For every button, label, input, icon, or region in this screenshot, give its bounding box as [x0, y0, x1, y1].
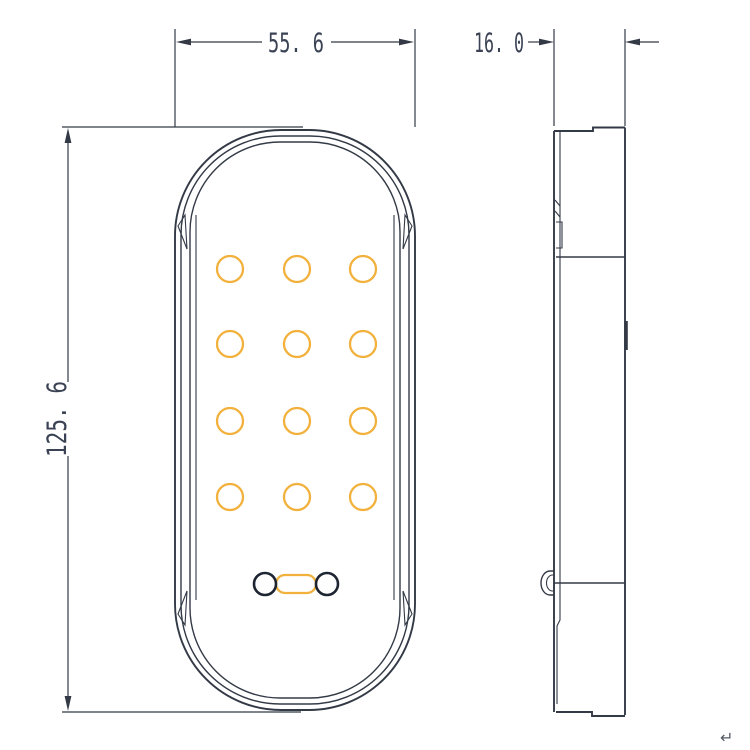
- led-circle: [217, 331, 243, 357]
- depth-dimension-text: 16. 0: [474, 28, 524, 59]
- front-bezel-outline: [181, 136, 409, 704]
- connector-hole-right: [316, 573, 338, 595]
- side-clip-latch: [556, 222, 562, 248]
- led-circle: [217, 256, 243, 282]
- side-top-edge: [554, 128, 625, 132]
- width-dimension-text: 55. 6: [268, 28, 324, 59]
- height-dimension-text: 125. 6: [42, 381, 73, 457]
- dimension-depth: 16. 0: [474, 28, 659, 126]
- width-arrow-right: [399, 39, 414, 46]
- led-circle: [350, 256, 376, 282]
- height-arrow-bottom: [65, 696, 72, 711]
- led-circle: [217, 408, 243, 434]
- return-glyph: ↵: [720, 728, 733, 747]
- connector-pad: [276, 575, 316, 593]
- front-lens-outline: [190, 142, 400, 698]
- led-circle: [284, 408, 310, 434]
- drawing-canvas: 55. 6 16. 0 125. 6 ↵: [0, 0, 750, 750]
- depth-extension-lines: [554, 29, 625, 126]
- front-view: [175, 130, 415, 710]
- dimension-width: 55. 6: [175, 28, 415, 127]
- led-circle: [350, 408, 376, 434]
- led-circle: [284, 484, 310, 510]
- technical-drawing-svg: 55. 6 16. 0 125. 6 ↵: [0, 0, 750, 750]
- led-circle: [350, 484, 376, 510]
- side-clip-ticks: [555, 200, 560, 217]
- led-circle: [284, 331, 310, 357]
- width-arrow-left: [176, 39, 191, 46]
- led-grid: [217, 256, 376, 510]
- dimension-height: 125. 6: [42, 127, 303, 712]
- connector-hole-left: [254, 573, 276, 595]
- side-connector-bump-inner: [547, 575, 555, 591]
- side-bottom-edge: [556, 712, 625, 716]
- connector: [254, 573, 338, 595]
- led-circle: [284, 256, 310, 282]
- depth-arrow-right: [625, 39, 640, 46]
- depth-arrow-left: [539, 39, 554, 46]
- side-view: [541, 128, 626, 717]
- front-outer-outline: [175, 130, 415, 710]
- height-arrow-top: [65, 128, 72, 143]
- led-circle: [350, 331, 376, 357]
- led-circle: [217, 484, 243, 510]
